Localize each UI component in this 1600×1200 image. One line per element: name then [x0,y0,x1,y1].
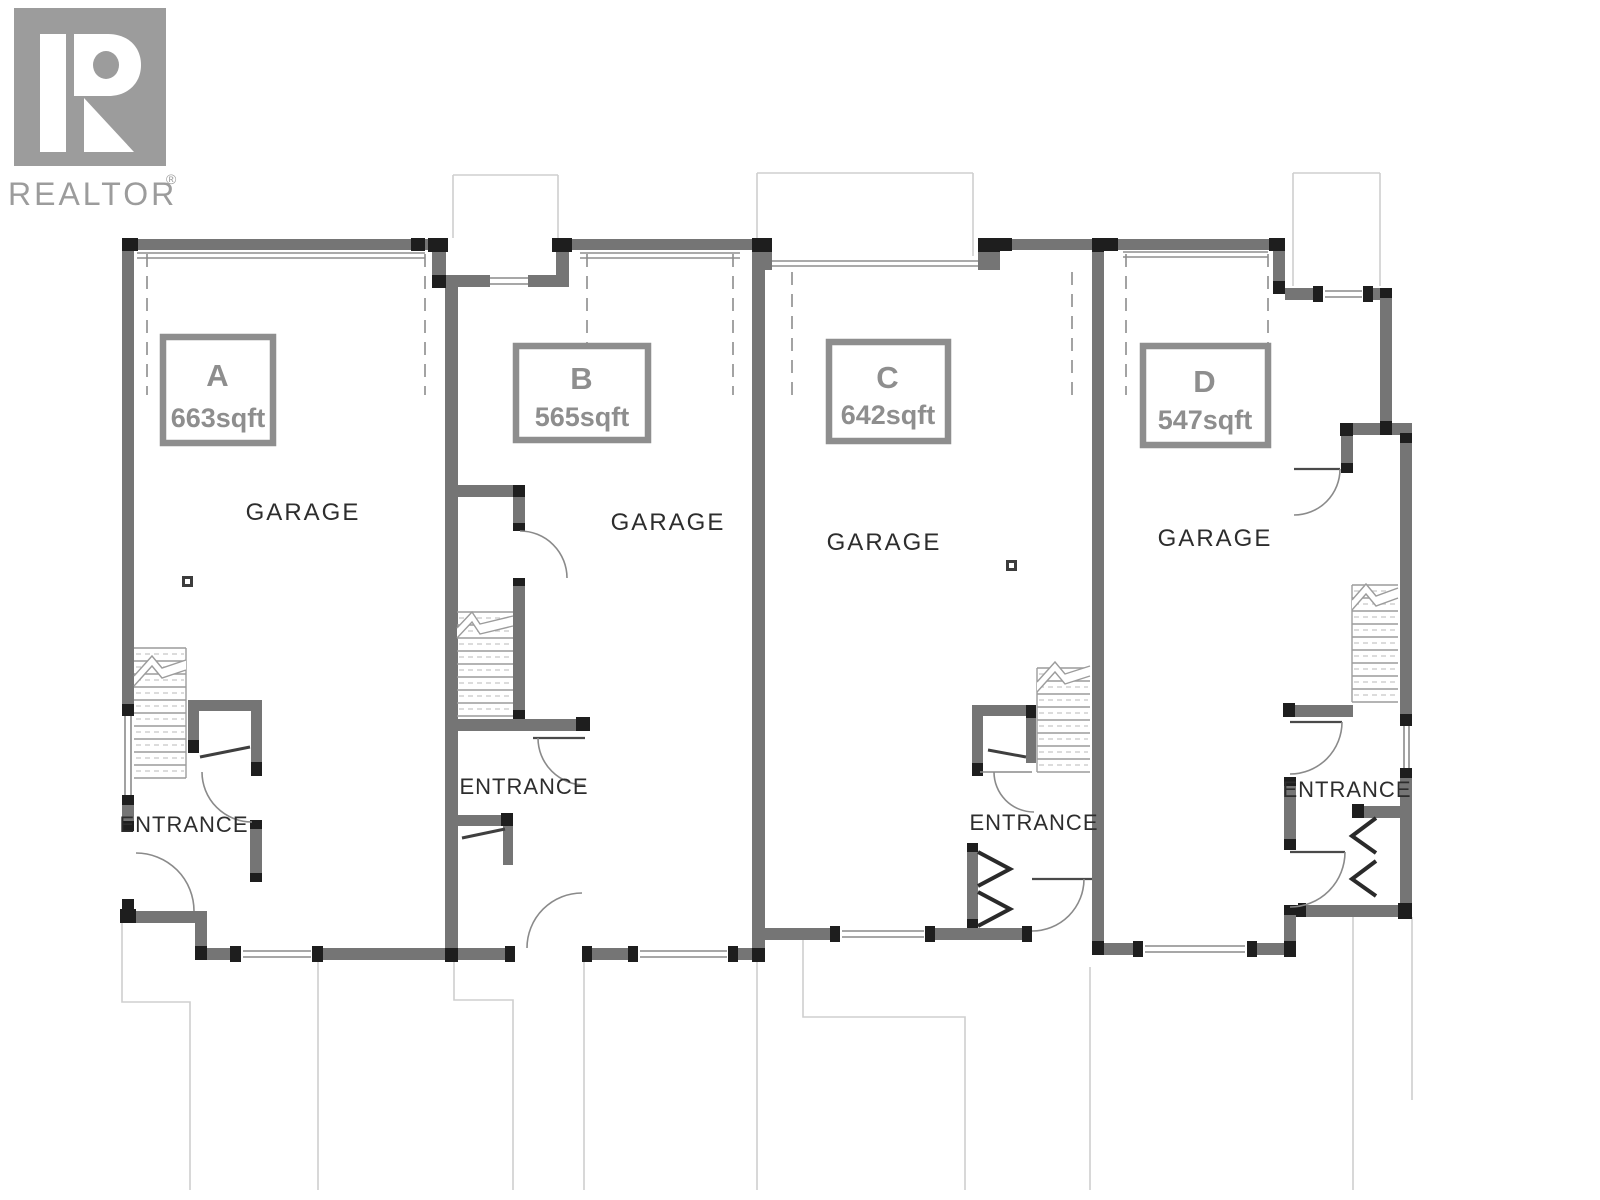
unit-d-id: D [1193,364,1216,399]
unit-b: B 565sqft GARAGE ENTRANCE [459,346,725,799]
unit-d-entrance-label: ENTRANCE [1282,777,1411,802]
unit-c-room-label: GARAGE [827,529,942,556]
stair-edges [186,585,1352,778]
unit-c-entrance-label: ENTRANCE [969,810,1098,835]
unit-a-area: 663sqft [171,403,266,433]
unit-b-entrance-label: ENTRANCE [459,774,588,799]
registered-mark: ® [166,171,177,187]
stair-break-marks [134,584,1398,692]
unit-a-entrance-label: ENTRANCE [119,812,248,837]
floorplan-page: REALTOR ® [0,0,1600,1200]
unit-a: A 663sqft GARAGE ENTRANCE [119,337,360,837]
unit-b-area: 565sqft [535,402,630,432]
unit-d-area: 547sqft [1158,405,1253,435]
unit-b-room-label: GARAGE [611,509,726,536]
site-ghost-lines [122,173,1412,1190]
unit-c-id: C [876,360,899,395]
unit-a-id: A [206,358,229,393]
unit-c: C 642sqft GARAGE ENTRANCE [827,342,1099,835]
realtor-wordmark: REALTOR [8,176,177,212]
unit-d: D 547sqft GARAGE ENTRANCE [1143,346,1412,802]
floor-drains [182,560,1017,587]
unit-c-area: 642sqft [841,400,936,430]
unit-d-room-label: GARAGE [1158,525,1273,552]
floorplan-canvas: REALTOR ® [0,0,1600,1200]
realtor-logo: REALTOR ® [8,8,177,212]
unit-b-id: B [570,361,593,396]
unit-a-room-label: GARAGE [246,499,361,526]
